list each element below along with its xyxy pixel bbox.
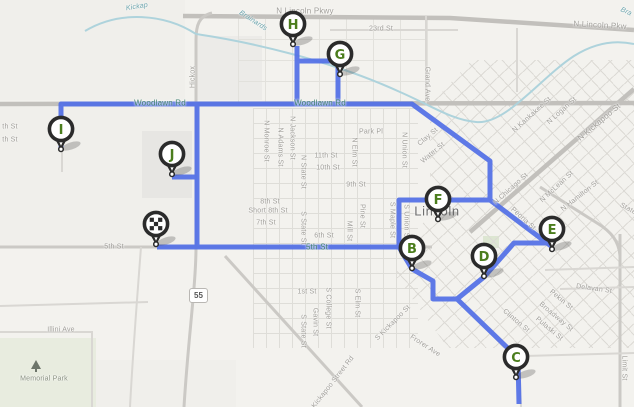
street-label: Limit St bbox=[621, 356, 628, 381]
svg-text:B: B bbox=[407, 242, 417, 257]
street-label: th St bbox=[2, 137, 17, 144]
street-label: Pine St bbox=[359, 204, 366, 228]
street-label: N Union St bbox=[401, 132, 408, 168]
road bbox=[130, 247, 141, 407]
street-label: 23rd St bbox=[369, 26, 393, 33]
street-label: 9th St bbox=[346, 182, 366, 189]
street-label: 6th St bbox=[314, 233, 334, 240]
street-label: 7th St bbox=[256, 220, 276, 227]
creek bbox=[85, 17, 196, 34]
street-label: S College St bbox=[325, 287, 332, 328]
street-label: Mill St bbox=[346, 221, 353, 241]
svg-text:J: J bbox=[169, 148, 175, 163]
street-label: Short 8th St bbox=[248, 208, 287, 215]
road bbox=[0, 302, 148, 306]
svg-text:I: I bbox=[59, 123, 64, 138]
svg-text:E: E bbox=[548, 223, 557, 238]
street-label: 5th St bbox=[104, 244, 124, 251]
street-label: 8th St bbox=[260, 199, 280, 206]
street-label: 10th St bbox=[316, 165, 340, 172]
map-lines-layer bbox=[0, 0, 634, 407]
street-label: Illini Ave bbox=[47, 327, 75, 334]
street-label: Hickox bbox=[190, 66, 197, 88]
street-label: Grand Ave bbox=[424, 67, 431, 102]
map-canvas[interactable]: N Lincoln PkwyN Lincoln Pkw23rd StGrand … bbox=[0, 0, 634, 407]
street-label: th St bbox=[2, 124, 17, 131]
road bbox=[525, 353, 634, 356]
svg-text:C: C bbox=[511, 351, 521, 366]
street-label: 1st St bbox=[297, 289, 316, 296]
highway-shield: 55 bbox=[189, 288, 208, 303]
tree-icon bbox=[31, 360, 41, 372]
street-label: 11th St bbox=[314, 153, 337, 160]
road bbox=[225, 256, 362, 407]
svg-text:D: D bbox=[479, 250, 490, 265]
street-label: S State St bbox=[300, 314, 307, 348]
street-label: Park Pl bbox=[359, 129, 383, 136]
street-label: S State St bbox=[300, 211, 307, 245]
street-label: N Monroe St bbox=[263, 120, 270, 162]
svg-text:H: H bbox=[288, 18, 299, 33]
street-label: N Adams St bbox=[277, 128, 284, 167]
svg-text:F: F bbox=[434, 193, 443, 208]
street-label: 5th St bbox=[306, 243, 328, 252]
street-label: Woodlawn Rd bbox=[134, 99, 186, 108]
street-label: N Elm St bbox=[351, 137, 358, 166]
street-label: N Jackson St bbox=[289, 116, 296, 160]
highway-shield-number: 55 bbox=[194, 292, 203, 300]
park-label: Memorial Park bbox=[20, 376, 68, 383]
street-label: Gavin St bbox=[312, 308, 319, 336]
street-label: S Elm St bbox=[354, 289, 361, 318]
road bbox=[0, 332, 92, 407]
street-label: N State St bbox=[300, 155, 307, 189]
svg-text:G: G bbox=[335, 48, 346, 63]
street-label: Woodlawn Rd bbox=[294, 99, 346, 108]
